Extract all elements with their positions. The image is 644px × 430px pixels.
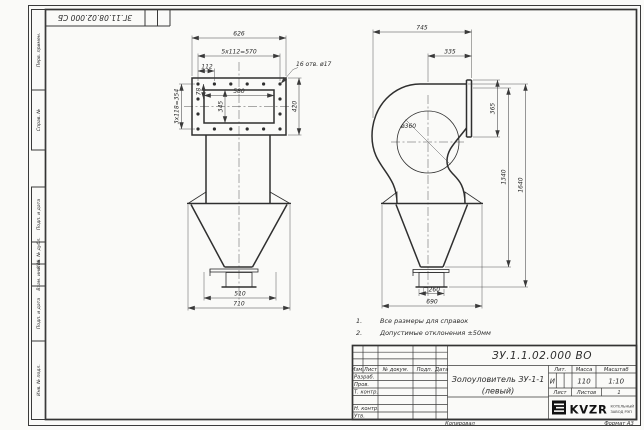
dim-side-outlet-square: □260 bbox=[423, 287, 440, 294]
stamp-sprav-no: Справ. № bbox=[36, 109, 42, 132]
front-cone-right bbox=[253, 205, 288, 268]
dim-front-overall-width: 626 bbox=[233, 31, 245, 38]
dim-front-bolt-spacing-side: 3х118=354 bbox=[174, 89, 181, 124]
dim-front-outlet-width: 510 bbox=[234, 291, 246, 298]
format-label: Формат А3 bbox=[604, 421, 634, 427]
dim-front-bolt-spacing-top: 5х112=570 bbox=[221, 49, 256, 56]
scale-value: 1:10 bbox=[608, 378, 624, 386]
front-gusset-right bbox=[270, 192, 290, 204]
dim-front-inner-height: 345 bbox=[218, 101, 225, 113]
side-outlet-box bbox=[419, 273, 444, 288]
front-gusset-left bbox=[188, 192, 206, 204]
note-1-text: Все размеры для справок bbox=[380, 317, 468, 325]
side-outlet-plate bbox=[413, 270, 449, 273]
side-dimensions: 745 335 365 1340 1640 □260 bbox=[373, 25, 528, 309]
title-block: Изм. Лист № докум. Подп. Дата Разраб. Пр… bbox=[352, 346, 637, 420]
corner-designation: ЗГ.11.08.02.000 СБ bbox=[58, 13, 132, 22]
stamp-perv-primen: Перв. примен. bbox=[36, 33, 42, 68]
lit-value: И bbox=[550, 378, 556, 386]
side-outlet-flange bbox=[467, 80, 472, 137]
dim-side-body-diameter: ø360 bbox=[400, 123, 416, 130]
col-list: Лист bbox=[363, 367, 378, 373]
dim-side-overall-width: 745 bbox=[416, 25, 428, 32]
side-gusset-left bbox=[382, 192, 397, 204]
title-block-right-grid: Лит. Масса Масштаб И 110 1:10 Лист Листо… bbox=[549, 366, 637, 397]
role-n-kontr: Н. контр. bbox=[354, 406, 379, 412]
lit-label: Лит. bbox=[553, 367, 566, 373]
stamp-podp-data-1: Подп. и дата bbox=[36, 199, 42, 230]
note-2-text: Допустимые отклонения ±50мм bbox=[379, 329, 491, 337]
side-volute-right-outline bbox=[447, 128, 467, 204]
top-designation-cell: ЗГ.11.08.02.000 СБ bbox=[46, 10, 171, 27]
role-prov: Пров. bbox=[354, 382, 369, 388]
dim-front-base-width: 710 bbox=[233, 301, 245, 308]
role-razrab: Разраб. bbox=[354, 375, 374, 381]
drawing-sheet-svg: ЗГ.11.08.02.000 СБ Перв. примен. Справ. … bbox=[0, 0, 644, 430]
notes: 1. Все размеры для справок 2. Допустимые… bbox=[356, 317, 491, 337]
sheets-value: 1 bbox=[617, 390, 620, 396]
note-1-number: 1. bbox=[356, 317, 362, 325]
side-scroll-outline bbox=[372, 84, 420, 204]
drawing-sheet: ЗГ.11.08.02.000 СБ Перв. примен. Справ. … bbox=[0, 0, 644, 430]
product-name: Золоуловитель ЗУ-1-1 bbox=[452, 375, 545, 384]
side-view: ø360 745 335 365 bbox=[372, 25, 528, 309]
front-outlet-plate bbox=[210, 269, 258, 272]
side-gusset-right bbox=[465, 192, 482, 204]
col-data: Дата bbox=[434, 367, 448, 373]
mass-value: 110 bbox=[577, 378, 591, 386]
col-izm: Изм. bbox=[352, 367, 364, 373]
left-stamp-column: Перв. примен. Справ. № Подп. и дата Инв.… bbox=[32, 10, 46, 420]
stamp-inv-podl: Инв. № подл. bbox=[36, 364, 42, 396]
dim-front-inner-width: 580 bbox=[233, 88, 245, 95]
dim-side-overall-height: 1640 bbox=[518, 177, 525, 192]
col-docnum: № докум. bbox=[382, 367, 409, 373]
sheet-label: Лист bbox=[552, 390, 567, 396]
dim-side-base-width: 690 bbox=[426, 299, 438, 306]
front-view: 626 5х112=570 112 16 отв. ø17 78 3х118=3… bbox=[174, 31, 332, 311]
dim-front-edge-offset: 78 bbox=[196, 88, 203, 96]
logo-text: KVZR bbox=[570, 403, 608, 417]
stamp-podp-data-2: Подп. и дата bbox=[36, 298, 42, 329]
role-utv: Утв. bbox=[354, 414, 365, 420]
logo-sub-line2: ЗАВОД РЭП bbox=[611, 410, 633, 414]
dim-front-bolt-pitch: 112 bbox=[201, 64, 213, 71]
dim-front-holes-note: 16 отв. ø17 bbox=[296, 61, 332, 68]
front-cone-left bbox=[191, 205, 225, 268]
side-cone-left bbox=[396, 205, 421, 268]
scale-label: Масштаб bbox=[604, 367, 629, 373]
product-variant: (левый) bbox=[482, 387, 515, 396]
col-podp: Подп. bbox=[417, 367, 433, 373]
front-dimensions: 626 5х112=570 112 16 отв. ø17 78 3х118=3… bbox=[174, 31, 332, 311]
dim-front-flange-height: 420 bbox=[292, 101, 299, 113]
title-block-left-grid: Изм. Лист № докум. Подп. Дата Разраб. Пр… bbox=[352, 346, 449, 420]
copied-label: Копировал bbox=[445, 421, 475, 427]
role-t-kontr: Т. контр. bbox=[354, 390, 378, 396]
title-designation: ЗУ.1.1.02.000 ВО bbox=[492, 350, 592, 362]
logo-sub-line1: КОТЕЛЬНЫЙ bbox=[611, 404, 635, 409]
logo: KVZR КОТЕЛЬНЫЙ ЗАВОД РЭП bbox=[552, 401, 634, 417]
sheet-frame: ЗГ.11.08.02.000 СБ Перв. примен. Справ. … bbox=[29, 6, 641, 426]
stamp-vzam-inv: Взам. инв. № bbox=[36, 259, 42, 290]
dim-side-flange-height: 365 bbox=[490, 103, 497, 115]
mass-label: Масса bbox=[576, 367, 593, 373]
dim-side-cone-height: 1340 bbox=[501, 169, 508, 184]
dim-side-outlet-length: 335 bbox=[444, 49, 456, 56]
sheets-label: Листов bbox=[576, 390, 596, 396]
side-cone-right bbox=[443, 205, 468, 268]
note-2-number: 2. bbox=[356, 329, 362, 337]
